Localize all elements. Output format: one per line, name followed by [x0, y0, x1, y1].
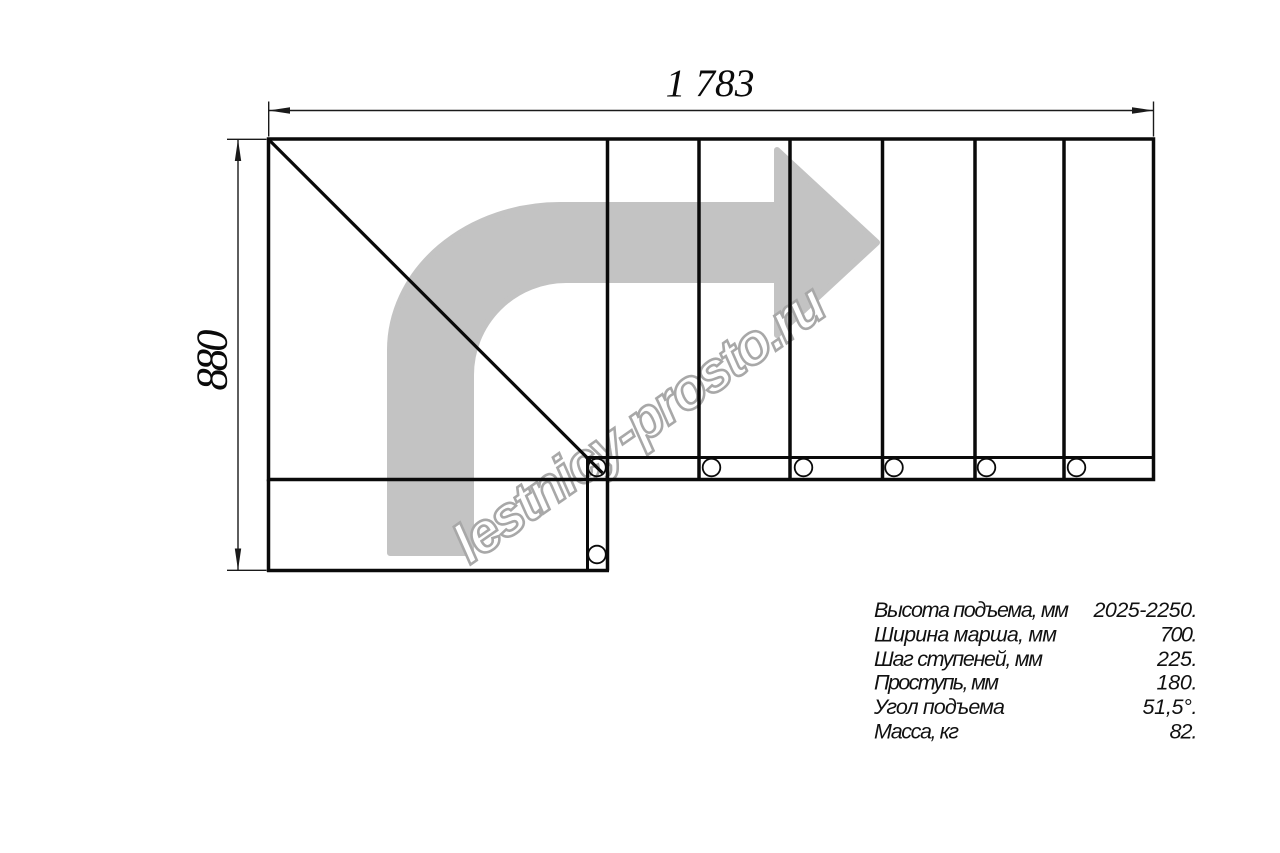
svg-text:82.: 82. — [1170, 720, 1198, 744]
svg-text:880: 880 — [187, 330, 237, 391]
svg-text:Проступь, мм: Проступь, мм — [874, 671, 999, 695]
svg-text:51,5°.: 51,5°. — [1143, 695, 1198, 719]
svg-text:Угол подъема: Угол подъема — [873, 695, 1005, 719]
svg-text:Высота подъема, мм: Высота подъема, мм — [874, 598, 1069, 622]
svg-text:2025-2250.: 2025-2250. — [1093, 598, 1198, 622]
svg-text:Ширина марша, мм: Ширина марша, мм — [874, 622, 1057, 646]
svg-text:1 783: 1 783 — [666, 61, 755, 105]
svg-text:lestnicy-prosto.ru: lestnicy-prosto.ru — [441, 271, 838, 575]
svg-text:Масса, кг: Масса, кг — [874, 720, 959, 744]
svg-text:700.: 700. — [1160, 622, 1198, 646]
svg-text:180.: 180. — [1157, 671, 1198, 695]
svg-text:225.: 225. — [1156, 647, 1198, 671]
svg-text:Шаг ступеней, мм: Шаг ступеней, мм — [874, 647, 1043, 671]
